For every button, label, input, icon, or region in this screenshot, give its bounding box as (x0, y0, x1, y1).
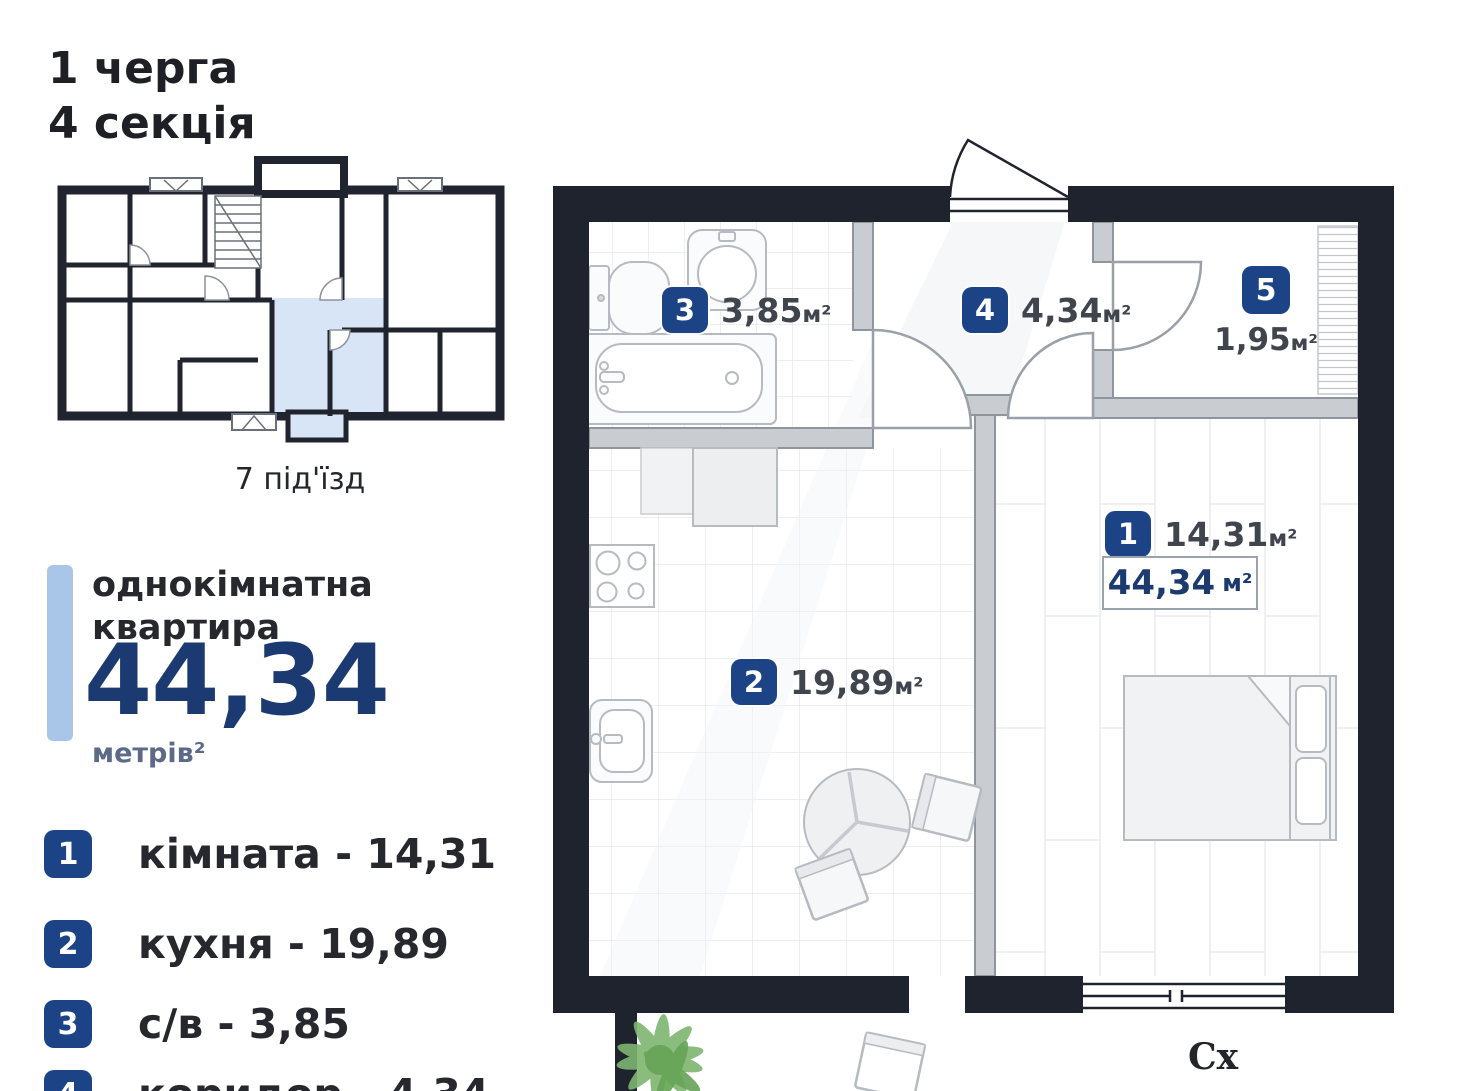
balcony-doorway (909, 976, 965, 1013)
stairs-icon (215, 196, 261, 268)
room-label-1: 1 14,31м² (1105, 511, 1297, 557)
legend-badge-2: 2 (44, 920, 92, 968)
entrance-door-icon (950, 140, 1068, 222)
mini-building-plan (62, 160, 500, 440)
legend-badge-3: 3 (44, 1000, 92, 1048)
total-area-unit: метрів² (92, 738, 206, 769)
legend-item: 1 кімната - 14,31 (44, 830, 496, 878)
stove-icon (590, 545, 654, 607)
legend-badge-4: 4 (44, 1070, 92, 1091)
room-label-3: 3 3,85м² (662, 287, 831, 333)
entrance-caption: 7 під'їзд (140, 462, 460, 497)
kitchen-counter-icon (641, 448, 693, 514)
total-area-value: 44,34 (84, 624, 389, 738)
legend-item: 4 коридор - 4,34 (44, 1070, 489, 1091)
page-title: 1 черга 4 секція (48, 42, 256, 151)
compass-east-label: Сх (1188, 1036, 1238, 1078)
kitchen-sink-icon (590, 700, 652, 782)
fridge-icon (693, 448, 777, 526)
room-label-2: 2 19,89м² (731, 659, 923, 705)
legend-item: 3 с/в - 3,85 (44, 1000, 350, 1048)
room-label-5: 5 1,95м² (1196, 266, 1336, 358)
toilet-icon (589, 262, 669, 334)
bathtub-icon (584, 334, 776, 424)
chair-icon (855, 1032, 925, 1091)
title-line-1: 1 черга (48, 42, 256, 97)
total-area-box: 44,34 м² (1102, 556, 1258, 610)
room-label-4: 4 4,34м² (962, 287, 1131, 333)
bed-icon (1124, 676, 1336, 840)
legend-label-3: с/в - 3,85 (138, 1000, 350, 1048)
legend-label-1: кімната - 14,31 (138, 830, 496, 878)
window-icon (1083, 976, 1285, 1013)
floor-plan-page: 1 черга 4 секція 7 під'їзд однокімнатна … (0, 0, 1459, 1091)
legend-label-2: кухня - 19,89 (138, 920, 449, 968)
legend-item: 2 кухня - 19,89 (44, 920, 449, 968)
legend-badge-1: 1 (44, 830, 92, 878)
title-line-2: 4 секція (48, 97, 256, 152)
accent-bar (47, 565, 73, 741)
legend-label-4: коридор - 4,34 (138, 1070, 489, 1091)
